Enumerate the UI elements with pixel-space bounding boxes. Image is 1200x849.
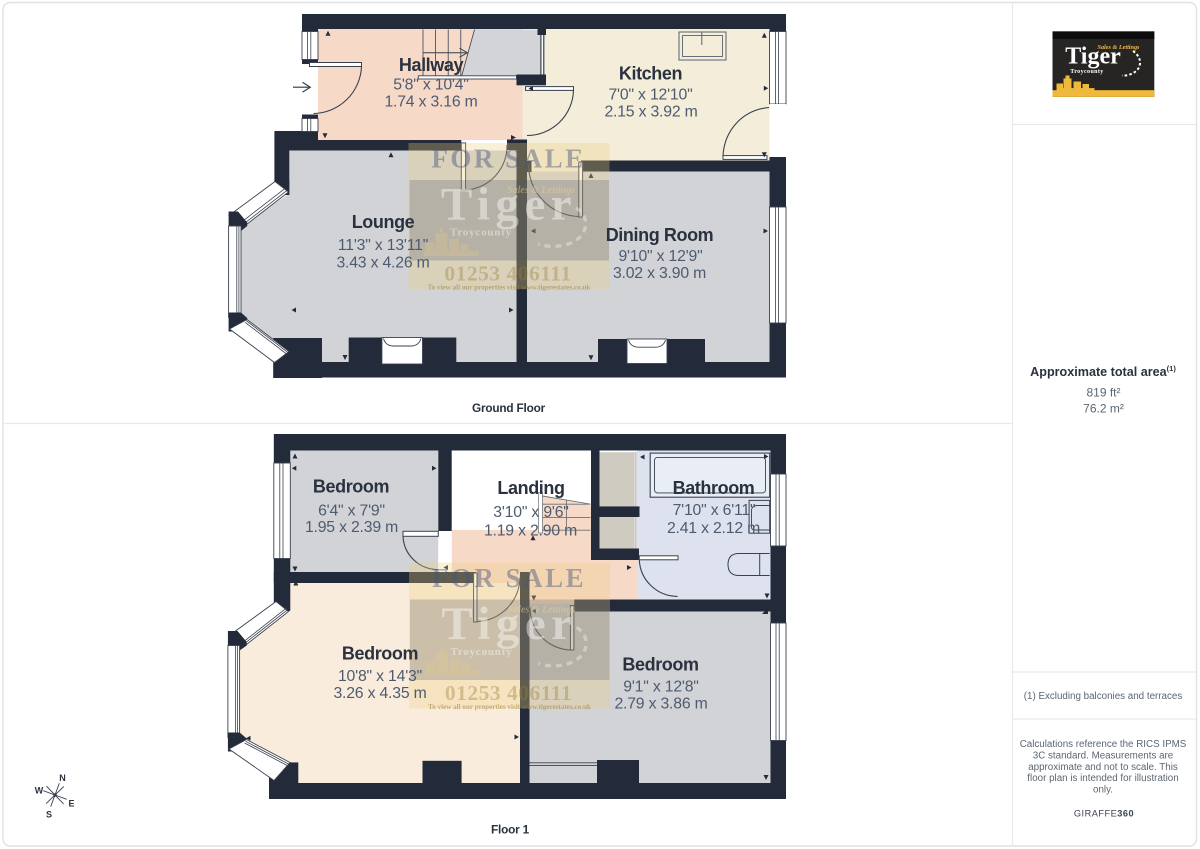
svg-text:1.95 x 2.39 m: 1.95 x 2.39 m [305, 519, 398, 536]
svg-text:Bedroom: Bedroom [342, 644, 418, 664]
svg-text:9'10" x 12'9": 9'10" x 12'9" [618, 248, 702, 265]
svg-text:Sales & Lettings: Sales & Lettings [1098, 44, 1141, 51]
svg-text:2.41 x 2.12 m: 2.41 x 2.12 m [667, 520, 760, 537]
svg-text:6'4" x 7'9": 6'4" x 7'9" [318, 503, 385, 520]
svg-text:W: W [35, 786, 44, 796]
svg-text:1.19 x 2.90 m: 1.19 x 2.90 m [484, 523, 577, 540]
svg-text:7'0" x 12'10": 7'0" x 12'10" [608, 87, 692, 104]
svg-text:N: N [59, 773, 66, 783]
svg-text:01253 406111: 01253 406111 [444, 262, 571, 286]
svg-text:Lounge: Lounge [352, 212, 415, 232]
svg-text:S: S [46, 810, 52, 820]
svg-text:9'1" x 12'8": 9'1" x 12'8" [623, 679, 698, 696]
svg-text:2.79 x 3.86 m: 2.79 x 3.86 m [614, 696, 707, 713]
svg-text:Calculations reference the RIC: Calculations reference the RICS IPMS [1020, 739, 1187, 750]
svg-text:floor plan is intended for ill: floor plan is intended for illustration [1027, 773, 1178, 784]
svg-text:76.2 m²: 76.2 m² [1083, 402, 1124, 416]
svg-text:3.02 x 3.90 m: 3.02 x 3.90 m [613, 265, 706, 282]
svg-text:7'10" x 6'11": 7'10" x 6'11" [673, 502, 756, 519]
svg-text:Bedroom: Bedroom [313, 477, 389, 497]
svg-text:Troycounty: Troycounty [450, 227, 512, 239]
svg-text:Troycounty: Troycounty [1070, 69, 1103, 75]
svg-text:3C standard. Measurements are: 3C standard. Measurements are [1033, 750, 1174, 761]
svg-text:Kitchen: Kitchen [619, 64, 682, 84]
svg-text:1.74 x 3.16 m: 1.74 x 3.16 m [384, 94, 477, 111]
svg-text:approximate and not to scale.: approximate and not to scale. This [1028, 762, 1178, 773]
svg-text:2.15 x 3.92 m: 2.15 x 3.92 m [604, 104, 697, 121]
svg-text:only.: only. [1093, 785, 1113, 796]
svg-text:5'8" x 10'4": 5'8" x 10'4" [393, 77, 468, 94]
svg-text:Bedroom: Bedroom [622, 655, 698, 675]
svg-text:Floor 1: Floor 1 [491, 823, 530, 837]
svg-text:Approximate total area(1): Approximate total area(1) [1030, 364, 1176, 379]
svg-text:Hallway: Hallway [399, 55, 464, 75]
svg-text:Ground Floor: Ground Floor [472, 401, 546, 415]
svg-text:E: E [68, 799, 74, 809]
svg-text:3'10" x 9'6": 3'10" x 9'6" [493, 504, 568, 521]
svg-text:3.43 x 4.26 m: 3.43 x 4.26 m [336, 255, 429, 272]
svg-text:11'3" x 13'11": 11'3" x 13'11" [338, 237, 428, 254]
svg-text:Bathroom: Bathroom [673, 478, 755, 498]
svg-text:819 ft²: 819 ft² [1086, 386, 1120, 400]
svg-text:Dining Room: Dining Room [606, 225, 714, 245]
svg-text:3.26 x 4.35 m: 3.26 x 4.35 m [333, 685, 426, 702]
svg-text:Tiger: Tiger [441, 179, 577, 231]
svg-text:(1) Excluding balconies and te: (1) Excluding balconies and terraces [1024, 691, 1183, 702]
svg-text:Landing: Landing [497, 478, 564, 498]
svg-text:FOR SALE: FOR SALE [431, 144, 585, 174]
svg-text:10'8" x 14'3": 10'8" x 14'3" [338, 668, 422, 685]
svg-text:To view all our properties vis: To view all our properties visit www.tig… [428, 284, 591, 292]
svg-text:GIRAFFE360: GIRAFFE360 [1074, 809, 1134, 819]
